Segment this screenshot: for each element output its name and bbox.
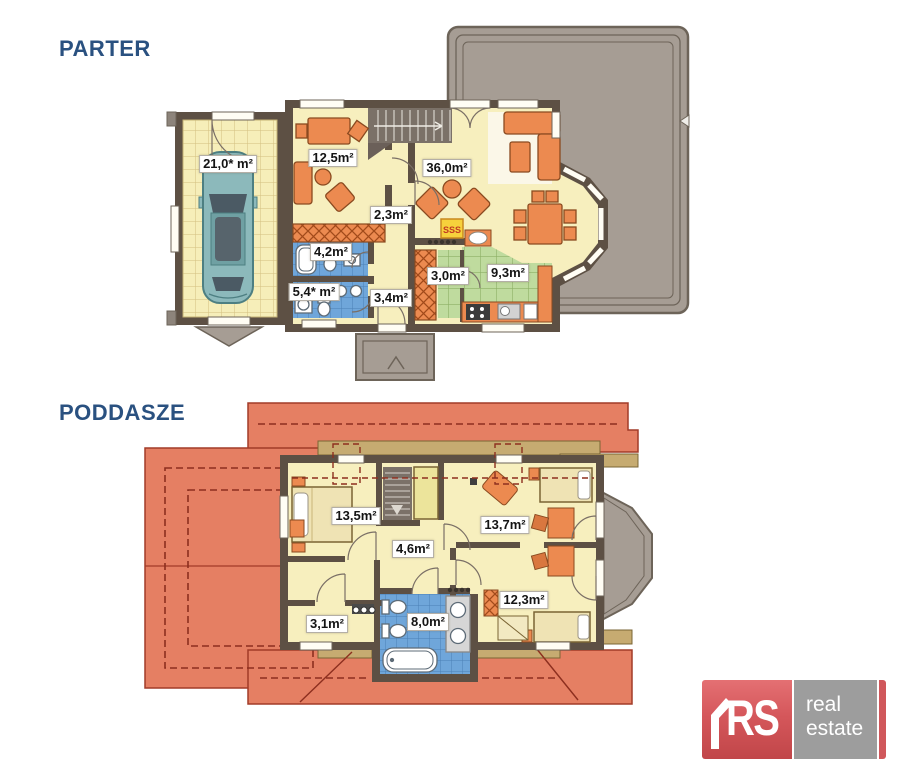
area-label-entry-hall: 3,4m² (370, 289, 412, 307)
door-peephole-dots (353, 607, 375, 613)
area-label-kitchen: 9,3m² (487, 264, 529, 282)
sink-icon (451, 629, 466, 644)
area-label-hallway: 2,3m² (370, 206, 412, 224)
area-label-hallway-2: 4,6m² (392, 540, 434, 558)
bowl-icon (469, 232, 487, 244)
fireplace-icon: SSS (441, 219, 463, 238)
rs-logo: RS (702, 680, 792, 759)
area-label-room-3-1: 3,1m² (306, 615, 348, 633)
area-label-bathroom-3: 8,0m² (407, 613, 449, 631)
closet (415, 250, 436, 320)
stove-icon (466, 304, 490, 320)
dining-table (528, 204, 562, 244)
area-label-living-room: 36,0m² (422, 159, 471, 177)
garage-porch (196, 327, 262, 346)
area-label-bathroom-2: 5,4* m² (289, 283, 340, 301)
garage-door (212, 112, 254, 120)
sink-icon (451, 603, 466, 618)
entry-door (378, 324, 406, 332)
entry-steps (356, 334, 434, 380)
desk (548, 508, 574, 538)
closet (293, 224, 385, 242)
balcony (598, 490, 652, 622)
attic-stairs (383, 467, 412, 520)
logo-line2: estate (806, 717, 877, 741)
logo-accent-bar (879, 680, 886, 759)
ground-floor-title: PARTER (59, 36, 151, 62)
closet (484, 590, 498, 616)
car (199, 152, 257, 303)
area-label-bedroom: 13,5m² (331, 507, 380, 525)
toilet-icon (382, 600, 389, 614)
chimney (414, 467, 438, 519)
dishwasher-icon (524, 304, 537, 319)
area-label-bathroom: 4,2m² (310, 243, 352, 261)
svg-text:SSS: SSS (443, 225, 461, 235)
area-label-garage: 21,0* m² (199, 155, 257, 173)
desk (548, 546, 574, 576)
attic-title: PODDASZE (59, 400, 185, 426)
logo-line1: real (806, 693, 877, 717)
ground-floor-plan: SSS (167, 27, 689, 380)
logo-monogram: RS (726, 680, 778, 759)
sink-icon (351, 286, 362, 297)
area-label-room: 12,5m² (308, 149, 357, 167)
floor-plans-drawing: SSS (0, 0, 902, 768)
floor-plans-page: SSS (0, 0, 902, 768)
toilet-icon (382, 624, 389, 638)
area-label-bedroom-3: 12,3m² (499, 591, 548, 609)
area-label-bedroom-2: 13,7m² (480, 516, 529, 534)
area-label-pantry: 3,0m² (427, 267, 469, 285)
logo-wordmark: real estate (794, 680, 877, 759)
